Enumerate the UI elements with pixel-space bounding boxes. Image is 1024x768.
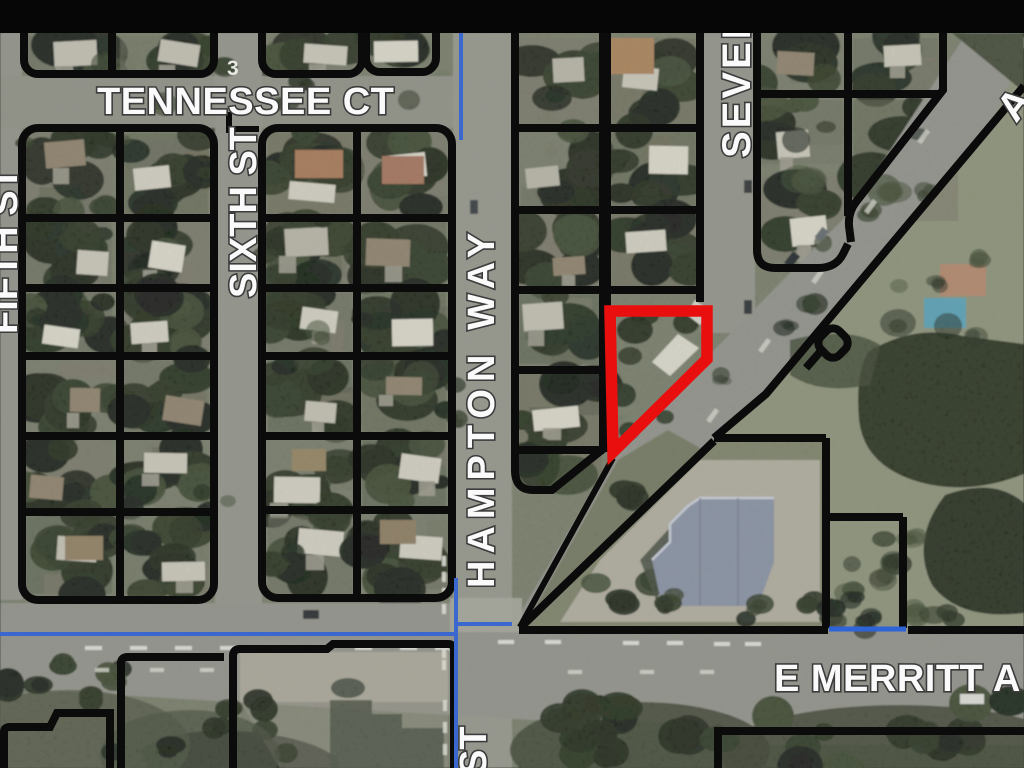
svg-text:ST: ST — [453, 726, 495, 768]
svg-text:SIXTH ST: SIXTH ST — [223, 127, 265, 298]
svg-text:FIFTH ST: FIFTH ST — [0, 167, 26, 334]
svg-text:HAMPTON WAY: HAMPTON WAY — [461, 226, 503, 588]
svg-text:TENNESSEE CT: TENNESSEE CT — [97, 81, 394, 123]
svg-text:E MERRITT A: E MERRITT A — [774, 658, 1021, 700]
svg-text:3: 3 — [227, 57, 239, 80]
